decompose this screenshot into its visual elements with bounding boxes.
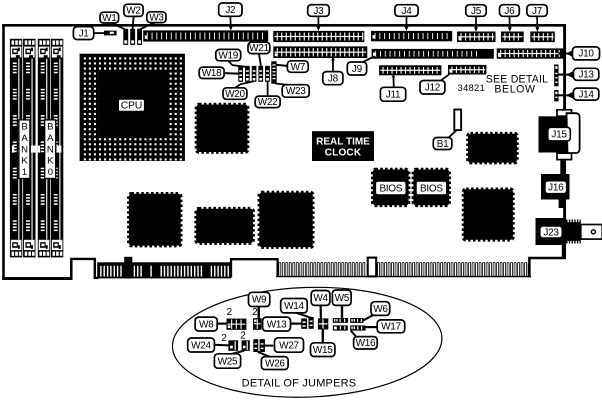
svg-text:34821: 34821 [458,83,486,93]
svg-text:A: A [47,133,54,144]
svg-text:W9: W9 [252,295,267,306]
svg-text:BIOS: BIOS [420,183,443,194]
svg-text:N: N [21,144,28,155]
svg-text:W5: W5 [335,293,350,304]
svg-text:W27: W27 [279,340,299,351]
svg-text:W4: W4 [313,293,328,304]
svg-text:DETAIL OF JUMPERS: DETAIL OF JUMPERS [242,377,357,389]
svg-text:1: 1 [22,167,27,178]
svg-text:W6: W6 [373,304,388,315]
svg-text:W24: W24 [191,340,211,351]
svg-text:B: B [21,122,27,133]
svg-text:W19: W19 [218,50,238,61]
svg-text:W18: W18 [202,68,222,79]
svg-text:J11: J11 [386,90,401,101]
svg-text:W20: W20 [225,89,245,100]
svg-text:J5: J5 [471,6,482,17]
svg-text:2: 2 [227,307,233,318]
svg-text:W17: W17 [381,322,401,333]
svg-text:W26: W26 [265,358,285,369]
svg-text:A: A [21,133,28,144]
svg-text:W8: W8 [199,319,214,330]
svg-text:REAL TIME: REAL TIME [316,137,370,148]
svg-text:J10: J10 [578,49,594,60]
svg-text:W7: W7 [291,62,306,73]
svg-text:W1: W1 [102,13,117,24]
svg-text:W15: W15 [313,345,333,356]
svg-text:J4: J4 [402,6,413,17]
svg-text:K: K [47,156,54,167]
svg-text:J13: J13 [578,70,594,81]
svg-text:J7: J7 [532,6,543,17]
svg-text:2: 2 [221,333,227,344]
svg-text:CPU: CPU [121,100,142,112]
svg-text:J1: J1 [79,28,90,39]
svg-text:W13: W13 [267,319,287,330]
svg-text:J2: J2 [225,5,236,16]
svg-text:J3: J3 [313,6,324,17]
svg-text:K: K [21,156,28,167]
svg-text:J14: J14 [578,89,594,100]
svg-text:BELOW: BELOW [494,84,535,96]
svg-text:W16: W16 [356,338,376,349]
svg-text:J16: J16 [548,183,564,194]
svg-text:BIOS: BIOS [379,183,402,194]
svg-text:J8: J8 [328,73,339,84]
svg-text:J9: J9 [352,64,363,75]
svg-text:W14: W14 [284,301,304,312]
svg-text:2: 2 [240,331,246,342]
svg-text:J6: J6 [504,6,515,17]
svg-text:N: N [47,144,54,155]
svg-text:W23: W23 [286,86,306,97]
svg-text:W3: W3 [149,13,164,24]
svg-text:W25: W25 [218,356,238,367]
svg-text:B: B [47,122,53,133]
svg-text:W2: W2 [126,6,141,17]
svg-text:0: 0 [48,167,53,178]
svg-text:J23: J23 [543,227,559,238]
svg-text:CLOCK: CLOCK [325,147,362,158]
svg-text:W22: W22 [258,97,278,108]
svg-text:J12: J12 [425,83,441,94]
svg-text:B1: B1 [437,139,449,150]
svg-text:W21: W21 [249,43,269,54]
svg-text:J15: J15 [551,129,567,140]
svg-text:2: 2 [252,307,258,318]
